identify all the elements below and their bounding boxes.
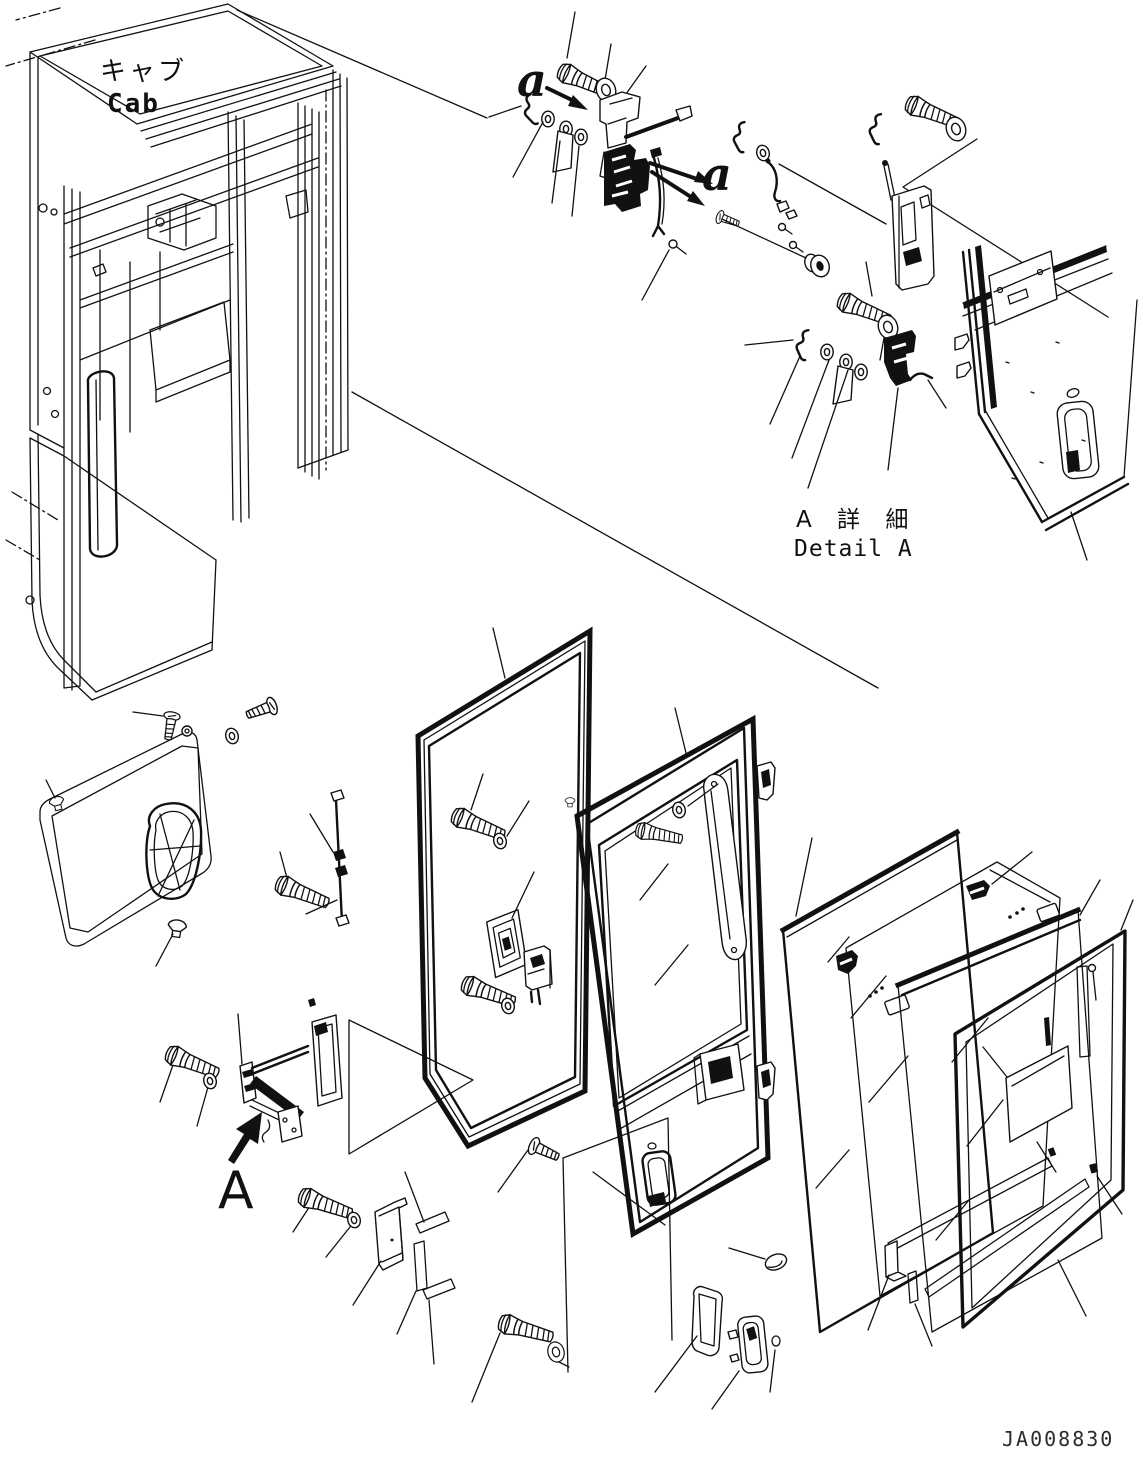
- striker-cover: [375, 1198, 407, 1270]
- parts-diagram-page: キャブ Cab a a A 詳 細 Detail A A JA008830: [0, 0, 1143, 1478]
- drawing-number: JA008830: [1002, 1427, 1114, 1451]
- handle-gasket: [655, 1287, 722, 1392]
- hinge-hardware: [868, 93, 1108, 317]
- door-lock-housing: [694, 1044, 744, 1104]
- latch-striker-plate: [486, 909, 528, 977]
- bottom-hardware: [293, 1172, 455, 1364]
- support-rod-hardware: [273, 790, 349, 1007]
- door-bottom-pocket: [642, 1143, 677, 1207]
- cab-structure: [6, 4, 348, 700]
- label-detail-a-japanese: A 詳 細: [796, 507, 917, 533]
- detail-a-door-panel: [955, 245, 1137, 560]
- door-pull-pocket: [1056, 387, 1100, 479]
- door-hinge-upper: [757, 762, 775, 800]
- weatherstrip-frame: [418, 628, 590, 1192]
- door-hinge-lower: [757, 1062, 775, 1100]
- door-assembly: [472, 708, 789, 1409]
- cover-assembly: [40, 696, 279, 966]
- striker-hardware: [745, 262, 946, 488]
- latch-bracket: [600, 92, 640, 148]
- section-arrow-upper: [547, 88, 588, 110]
- label-cab-english: Cab: [107, 89, 160, 119]
- marker-a-upper: a: [517, 53, 547, 107]
- window-run-channels: [868, 1158, 1122, 1346]
- latch-small-lock: [524, 946, 552, 1004]
- detail-a-assembly: [489, 12, 1137, 560]
- label-cab-japanese: キャブ: [100, 57, 187, 87]
- detail-arrow: [228, 1112, 262, 1164]
- label-detail-a-english: Detail A: [794, 536, 913, 562]
- door-lock-body: [600, 144, 662, 212]
- marker-detail-a: A: [218, 1161, 254, 1221]
- marker-a-lower: a: [702, 147, 732, 201]
- lock-small-parts-chain: [715, 121, 886, 279]
